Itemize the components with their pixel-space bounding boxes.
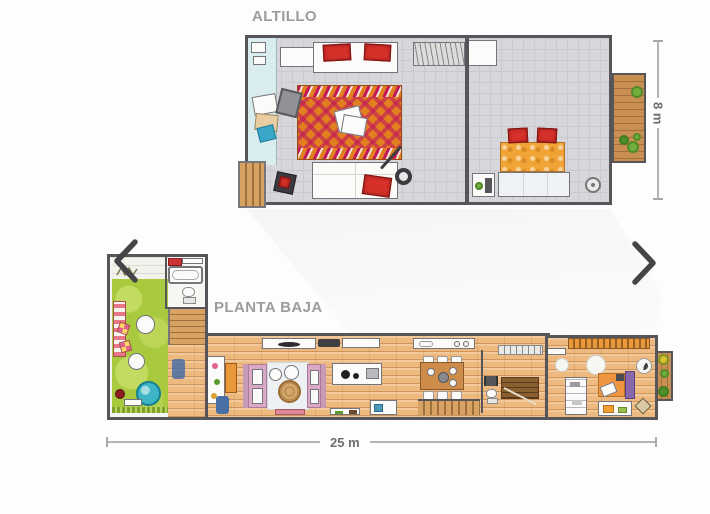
bathroom-wall	[165, 257, 167, 307]
hanging-chair	[636, 358, 652, 374]
sofa-cushion	[310, 389, 319, 404]
loft-divider-wall	[465, 38, 469, 202]
plant	[658, 386, 669, 397]
bed-headboard	[625, 371, 635, 399]
wall-ledge	[548, 348, 566, 355]
entry-cabinet	[225, 363, 237, 393]
island-sink	[366, 368, 379, 379]
planta-baja-title: PLANTA BAJA	[214, 299, 323, 316]
toilet	[182, 287, 195, 297]
pb-bed	[598, 371, 635, 399]
media-console	[262, 338, 316, 349]
dining-table	[420, 362, 464, 390]
sofa-cushion	[252, 388, 263, 404]
loft-cabinet	[468, 40, 497, 66]
plant	[633, 133, 641, 141]
loft-rug	[297, 85, 402, 160]
loft-nightstand	[472, 173, 495, 197]
bench-seam	[547, 173, 548, 196]
garden-patio	[112, 279, 168, 413]
toilet-tank	[183, 297, 196, 304]
loft-closet-hangers	[413, 42, 465, 66]
pb-bedroom-block	[545, 335, 658, 420]
loft-sofa-bottom	[312, 162, 398, 199]
sofa-seam	[355, 163, 356, 198]
loft-sofa-top	[313, 42, 398, 73]
plate	[449, 379, 457, 387]
bath-mat	[168, 258, 182, 266]
window-railing	[498, 345, 543, 355]
rug-paper-2	[341, 114, 368, 137]
plate	[427, 368, 435, 376]
washbasin-unit	[370, 400, 397, 415]
desk-item	[212, 363, 218, 369]
loft-pouf	[273, 171, 297, 195]
plate	[449, 367, 457, 375]
stair-stringer	[504, 387, 537, 405]
pb-main-stairs	[418, 399, 480, 415]
wardrobe-item	[572, 400, 582, 405]
dimension-label-25m: 25 m	[330, 435, 360, 450]
side-table	[284, 365, 299, 380]
dimension-8m: 8 m	[649, 40, 667, 200]
plant	[631, 86, 643, 98]
pb-staircase-2	[501, 377, 539, 399]
plant	[627, 141, 639, 153]
rug-border-top	[298, 86, 401, 97]
bathtub	[168, 266, 203, 284]
garden-fence	[112, 407, 168, 413]
sofa-back-panel	[321, 364, 326, 408]
counter-sink	[419, 341, 433, 347]
chair-seat	[639, 361, 650, 372]
sofa-right	[307, 364, 321, 408]
coffee-table	[278, 380, 301, 403]
dimension-line	[370, 441, 655, 443]
dimension-cap	[653, 198, 663, 200]
desk-pad	[618, 407, 627, 413]
altillo-title: ALTILLO	[252, 8, 317, 25]
garden-bench	[124, 399, 142, 406]
plant	[660, 369, 669, 378]
loft-balcony	[612, 73, 646, 163]
washer-dryer	[484, 376, 498, 386]
desk-laptop	[603, 405, 614, 413]
desk-item	[214, 379, 220, 385]
floor-plan-page: ALTILLO	[0, 0, 710, 514]
bed-bench	[498, 172, 570, 197]
console-tray	[278, 342, 300, 347]
pouf-cushion	[278, 176, 291, 189]
side-table	[269, 368, 282, 381]
bathtub-basin	[172, 270, 199, 280]
counter-burner	[463, 341, 469, 347]
wc-tank	[487, 398, 498, 404]
sofa-cushion	[252, 369, 263, 385]
plant	[658, 354, 669, 365]
pb-stairs-left	[168, 309, 205, 345]
dimension-cap	[655, 437, 657, 447]
pb-main-body	[205, 333, 550, 420]
floor-lamp-base	[395, 168, 412, 185]
garden-table	[136, 315, 155, 334]
plant	[475, 182, 483, 190]
speaker-cone	[591, 183, 595, 187]
chevron-right-icon[interactable]	[626, 238, 662, 288]
serving-bowl	[438, 372, 449, 383]
wall-cabinet	[342, 338, 380, 348]
hall-bench	[275, 409, 305, 415]
shelf-item	[335, 411, 343, 414]
shelf-item	[349, 410, 357, 414]
pergola-strip	[568, 338, 650, 349]
hall-runner	[172, 359, 185, 379]
chevron-left-icon[interactable]	[108, 236, 144, 286]
low-shelf	[330, 408, 360, 415]
dimension-label-8m: 8 m	[651, 102, 666, 124]
stove-burner	[341, 370, 350, 379]
loft-bed	[500, 142, 565, 172]
pb-desk	[598, 401, 632, 416]
bath-shelf	[182, 258, 203, 264]
loft-monitor	[251, 42, 266, 53]
wc-wall	[481, 350, 483, 413]
nightstand-drawer	[485, 178, 492, 193]
kitchen-island	[332, 363, 382, 385]
altillo-plan	[245, 35, 612, 205]
round-rug	[555, 358, 569, 372]
entry-rug	[216, 396, 229, 414]
pb-wardrobe	[565, 377, 587, 415]
dimension-line	[657, 42, 659, 98]
garden-table	[128, 353, 145, 370]
rug-border-bottom	[298, 148, 401, 159]
fire-bowl	[115, 389, 125, 399]
red-cushion	[323, 43, 352, 61]
garden-chair	[119, 340, 132, 353]
red-cushion	[364, 43, 392, 61]
dark-bench	[318, 339, 340, 347]
dimension-25m: 25 m	[106, 433, 657, 451]
bench-seam	[523, 173, 524, 196]
loft-stairs	[238, 161, 266, 208]
dimension-line	[108, 441, 320, 443]
loft-keyboard	[253, 56, 266, 65]
stove-burner	[353, 373, 359, 379]
kitchen-counter	[413, 338, 475, 349]
loft-side-table	[280, 47, 317, 67]
bed-pillow	[537, 127, 558, 143]
pb-hall-floor	[168, 345, 205, 417]
bed-pillow	[508, 127, 529, 143]
bed-cushion-dark	[616, 374, 624, 381]
diamond-stool	[635, 398, 652, 415]
sofa-left	[248, 364, 267, 408]
sofa-cushion	[310, 370, 319, 385]
wardrobe-item	[570, 382, 580, 387]
basin	[374, 404, 383, 412]
wc-toilet	[486, 389, 497, 398]
red-blanket	[362, 174, 393, 198]
loft-speaker	[585, 177, 601, 193]
counter-burner	[454, 341, 460, 347]
dimension-line	[657, 128, 659, 198]
